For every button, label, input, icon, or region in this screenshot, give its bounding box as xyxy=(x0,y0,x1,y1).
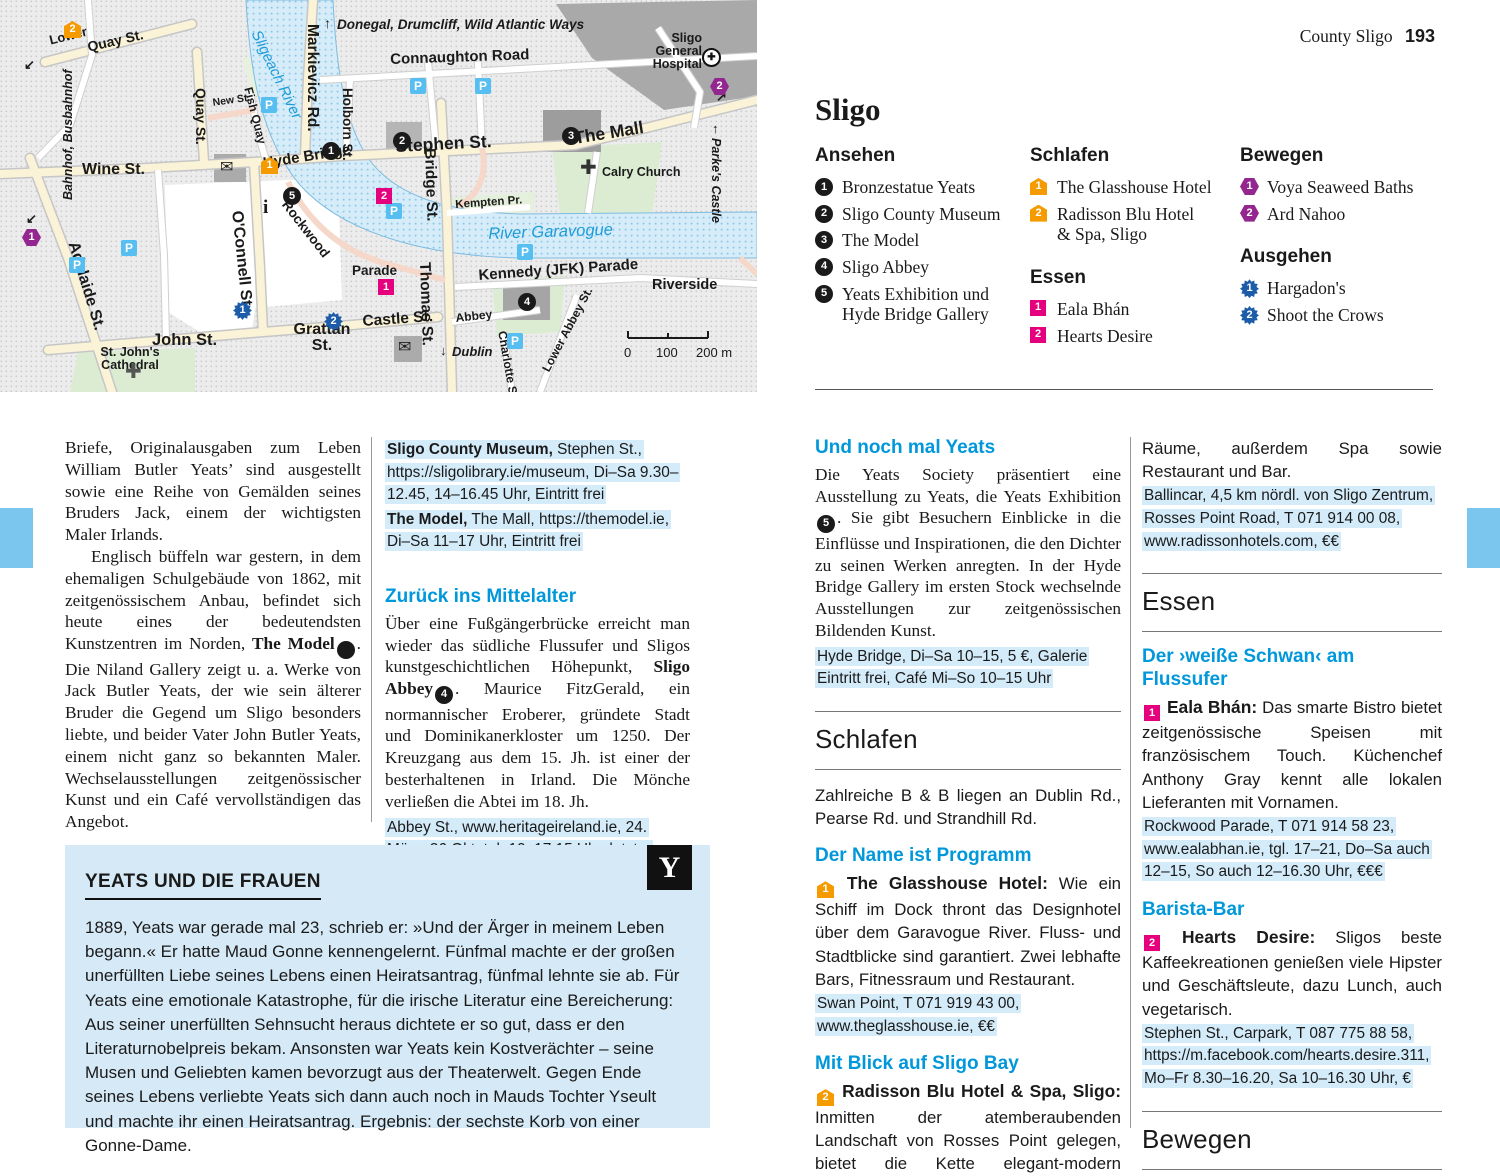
poi-label: Hargadon's xyxy=(1267,278,1346,298)
list-item: 1Eala Bhán xyxy=(1030,299,1230,320)
list-item: 1Hargadon's xyxy=(1240,278,1445,299)
restaurant-marker: 1 xyxy=(1144,705,1160,721)
practical-info: Stephen St., Carpark, T 087 775 88 58, h… xyxy=(1142,1023,1442,1091)
post-office-icon: ✉ xyxy=(398,340,411,356)
infobox-title: YEATS UND DIE FRAUEN xyxy=(85,871,321,900)
scale-label-0: 0 xyxy=(624,346,631,359)
poi-label: The Glasshouse Hotel xyxy=(1057,177,1212,197)
poi-label: Shoot the Crows xyxy=(1267,305,1384,325)
yeats-infobox: YEATS UND DIE FRAUEN Y 1889, Yeats war g… xyxy=(65,845,710,1128)
poi-overview: Ansehen 1Bronzestatue Yeats 2Sligo Count… xyxy=(815,145,1445,380)
running-head: County Sligo 193 xyxy=(1300,26,1435,47)
sight-marker: 3 xyxy=(337,641,355,659)
poi-label: The Model xyxy=(842,230,919,250)
poi-label: Sligo County Museum xyxy=(842,204,1001,224)
hotel-marker: 1 xyxy=(817,881,834,898)
poi-entry: 1 The Glasshouse Hotel: Wie ein Schiff i… xyxy=(815,872,1121,991)
poi-name-bold: Radisson Blu Hotel & Spa, Sligo: xyxy=(842,1081,1121,1101)
nightlife-marker: 1 xyxy=(1240,279,1259,298)
list-item: 1Voya Seaweed Baths xyxy=(1240,177,1445,198)
list-item: 2Shoot the Crows xyxy=(1240,305,1445,326)
map-label-donegal-ways: Donegal, Drumcliff, Wild Atlantic Ways xyxy=(337,18,584,32)
infobox-body: 1889, Yeats war gerade mal 23, schrieb e… xyxy=(85,916,682,1158)
map-marker-sight-2: 2 xyxy=(393,132,411,150)
poi-label: Bronzestatue Yeats xyxy=(842,177,975,197)
scale-label-200: 200 m xyxy=(696,346,732,359)
arrow-sw-icon: ↙ xyxy=(26,212,37,225)
body-text: . Die Niland Gallery zeigt u. a. Werke v… xyxy=(65,634,361,831)
map-label-bridge-st: Bridge St. xyxy=(421,148,439,222)
column-divider xyxy=(371,437,372,822)
scale-label-100: 100 xyxy=(656,346,678,359)
info-text: Ballincar, 4,5 km nördl. von Sligo Zentr… xyxy=(1142,486,1435,550)
calry-church-icon: ✚ xyxy=(580,158,597,178)
poi-name-bold: The Model xyxy=(252,634,335,653)
sight-marker: 4 xyxy=(815,258,833,276)
subheading: Der Name ist Programm xyxy=(815,845,1121,868)
practical-info: Ballincar, 4,5 km nördl. von Sligo Zentr… xyxy=(1142,485,1442,553)
group-bewegen-heading: Bewegen xyxy=(1240,145,1445,167)
chapter-tab-right xyxy=(1467,508,1500,568)
map-marker-sight-4: 4 xyxy=(518,293,536,311)
poi-name-bold: Sligo County Museum, xyxy=(387,441,553,458)
group-ansehen-heading: Ansehen xyxy=(815,145,1015,167)
practical-info: Hyde Bridge, Di–Sa 10–15, 5 €, Galerie E… xyxy=(815,646,1121,691)
body-paragraph: Briefe, Originalausgaben zum Leben Willi… xyxy=(65,437,361,546)
map-label-grattan-st: Grattan St. xyxy=(286,322,358,355)
sight-marker: 5 xyxy=(815,285,833,303)
parking-icon: P xyxy=(507,333,523,349)
sight-marker: 2 xyxy=(815,205,833,223)
list-item: 2Ard Nahoo xyxy=(1240,204,1445,225)
poi-label: Ard Nahoo xyxy=(1267,204,1345,224)
practical-info: The Model, The Mall, https://themodel.ie… xyxy=(385,509,690,554)
group-schlafen-heading: Schlafen xyxy=(1030,145,1230,167)
restaurant-marker: 2 xyxy=(1144,935,1160,951)
nightlife-marker: 2 xyxy=(1240,306,1259,325)
hospital-icon: ✚ xyxy=(702,48,721,67)
parking-icon: P xyxy=(121,240,137,256)
running-head-section: County Sligo xyxy=(1300,26,1393,46)
map-label-bahnhof-busbahnhof: Bahnhof, Busbahnhof xyxy=(62,69,75,200)
body-text: . Maurice FitzGerald, ein normannischer … xyxy=(385,679,690,811)
guidebook-spread: Lower Quay St. Quay St. New St. Fish Qua… xyxy=(0,0,1500,1176)
map-label-parade: Parade xyxy=(352,264,397,278)
restaurant-marker: 1 xyxy=(1030,300,1046,316)
poi-label: Hearts Desire xyxy=(1057,326,1153,346)
sligo-city-map: Lower Quay St. Quay St. New St. Fish Qua… xyxy=(0,0,757,392)
list-item: 1The Glasshouse Hotel xyxy=(1030,177,1230,198)
group-essen-heading: Essen xyxy=(1030,267,1230,289)
sight-marker: 3 xyxy=(815,231,833,249)
map-marker-food-2: 2 xyxy=(376,188,392,204)
page-number: 193 xyxy=(1405,26,1435,46)
practical-info: Rockwood Parade, T 071 914 58 23, www.ea… xyxy=(1142,816,1442,884)
list-item: 3The Model xyxy=(815,230,1015,251)
body-paragraph: Zahlreiche B & B liegen an Dublin Rd., P… xyxy=(815,784,1121,830)
subheading: Zurück ins Mittelalter xyxy=(385,586,690,609)
poi-entry: 2 Hearts Desire: Sligos beste Kaffeekrea… xyxy=(1142,926,1442,1021)
info-text: Stephen St., Carpark, T 087 775 88 58, h… xyxy=(1142,1024,1431,1088)
list-item: 2Hearts Desire xyxy=(1030,326,1230,347)
poi-entry: 1 Eala Bhán: Das smarte Bistro bietet ze… xyxy=(1142,696,1442,814)
body-paragraph: Die Yeats Society präsentiert eine Ausst… xyxy=(815,464,1121,642)
list-item: 1Bronzestatue Yeats xyxy=(815,177,1015,198)
sight-marker: 4 xyxy=(435,686,453,704)
hotel-marker: 2 xyxy=(817,1089,834,1106)
info-text: Hyde Bridge, Di–Sa 10–15, 5 €, Galerie E… xyxy=(815,647,1089,689)
body-paragraph: Englisch büffeln war gestern, in dem ehe… xyxy=(65,546,361,833)
cathedral-icon: ✚ xyxy=(125,362,142,382)
parking-icon: P xyxy=(517,244,533,260)
map-marker-sight-5: 5 xyxy=(283,187,301,205)
poi-entry: 2 Radisson Blu Hotel & Spa, Sligo: Inmit… xyxy=(815,1080,1121,1176)
post-office-icon: ✉ xyxy=(220,160,233,176)
body-text: Inmitten der atemberaubenden Landschaft … xyxy=(815,1108,1121,1176)
hotel-marker: 1 xyxy=(1030,178,1047,195)
arrow-sw-icon: ↙ xyxy=(24,58,35,71)
subheading: Und noch mal Yeats xyxy=(815,437,1121,460)
poi-label: Sligo Abbey xyxy=(842,257,929,277)
sight-marker: 5 xyxy=(817,515,835,533)
ansehen-list: 1Bronzestatue Yeats 2Sligo County Museum… xyxy=(815,177,1015,325)
practical-info: Sligo County Museum, Stephen St., https:… xyxy=(385,439,690,507)
poi-name-bold: Hearts Desire: xyxy=(1182,927,1315,947)
subheading: Mit Blick auf Sligo Bay xyxy=(815,1053,1121,1076)
overview-col-bewegen-ausgehen: Bewegen 1Voya Seaweed Baths 2Ard Nahoo A… xyxy=(1240,145,1445,332)
map-label-riverside: Riverside xyxy=(652,278,717,293)
poi-name-bold: The Glasshouse Hotel: xyxy=(847,873,1048,893)
section-bewegen: Bewegen xyxy=(1142,1111,1442,1170)
restaurant-marker: 2 xyxy=(1030,327,1046,343)
bewegen-list: 1Voya Seaweed Baths 2Ard Nahoo xyxy=(1240,177,1445,224)
map-marker-sight-1: 1 xyxy=(322,142,340,160)
map-marker-sight-3: 3 xyxy=(562,127,580,145)
city-title: Sligo xyxy=(815,92,880,128)
body-text: Die Yeats Society präsentiert eine Ausst… xyxy=(815,465,1121,506)
hotel-marker: 2 xyxy=(1030,205,1047,222)
sight-marker: 1 xyxy=(815,178,833,196)
body-text: . Sie gibt Besuchern Einblicke in die Ei… xyxy=(815,508,1121,640)
map-label-dublin: Dublin xyxy=(452,345,492,358)
body-paragraph: Räume, außerdem Spa sowie Restaurant und… xyxy=(1142,437,1442,483)
list-item: 5Yeats Exhibition und Hyde Bridge Galler… xyxy=(815,284,1002,325)
list-item: 2Sligo County Museum xyxy=(815,204,1015,225)
info-text: Rockwood Parade, T 071 914 58 23, www.ea… xyxy=(1142,817,1432,881)
map-label-wine-st: Wine St. xyxy=(82,162,145,178)
poi-name-bold: The Model, xyxy=(387,511,467,528)
map-label-thomas-st: Thomas St. xyxy=(416,262,435,346)
right-column-2: Räume, außerdem Spa sowie Restaurant und… xyxy=(1142,437,1442,1176)
body-paragraph: Über eine Fußgängerbrücke erreicht man w… xyxy=(385,613,690,813)
poi-label: Yeats Exhibition und Hyde Bridge Gallery xyxy=(842,284,989,325)
yeats-logo-icon: Y xyxy=(647,845,692,890)
wellness-marker: 2 xyxy=(1240,205,1259,222)
arrow-up-icon: ↑ xyxy=(324,16,331,30)
right-column-1: Und noch mal Yeats Die Yeats Society prä… xyxy=(815,437,1121,1176)
wellness-marker: 1 xyxy=(1240,178,1259,195)
column-divider xyxy=(1130,437,1131,1128)
map-label-calry-church: Calry Church xyxy=(602,166,681,179)
map-label-markievicz-rd: Markievicz Rd. xyxy=(304,24,320,132)
arrow-up-icon: ↑ xyxy=(712,122,719,135)
poi-label: Voya Seaweed Baths xyxy=(1267,177,1413,197)
schlafen-list: 1The Glasshouse Hotel 2Radisson Blu Hote… xyxy=(1030,177,1230,245)
list-item: 4Sligo Abbey xyxy=(815,257,1015,278)
poi-label: Radisson Blu Hotel & Spa, Sligo xyxy=(1057,204,1194,245)
overview-col-schlafen-essen: Schlafen 1The Glasshouse Hotel 2Radisson… xyxy=(1030,145,1230,352)
chapter-tab-left xyxy=(0,508,33,568)
left-column-2: Sligo County Museum, Stephen St., https:… xyxy=(385,437,690,884)
map-label-quay-st: Quay St. xyxy=(194,88,208,145)
subheading: Der ›weiße Schwan‹ am Flussufer xyxy=(1142,646,1442,692)
parking-icon: P xyxy=(261,97,277,113)
parking-icon: P xyxy=(410,78,426,94)
subheading: Barista-Bar xyxy=(1142,899,1442,922)
left-column-1: Briefe, Originalausgaben zum Leben Willi… xyxy=(65,437,361,833)
info-text: Swan Point, T 071 919 43 00, www.theglas… xyxy=(815,994,1021,1036)
poi-name-bold: Eala Bhán: xyxy=(1167,697,1257,717)
group-ausgehen-heading: Ausgehen xyxy=(1240,246,1445,268)
poi-label: Eala Bhán xyxy=(1057,299,1129,319)
ausgehen-list: 1Hargadon's 2Shoot the Crows xyxy=(1240,278,1445,325)
practical-info: Swan Point, T 071 919 43 00, www.theglas… xyxy=(815,993,1121,1038)
parking-icon: P xyxy=(475,78,491,94)
body-text: Über eine Fußgängerbrücke erreicht man w… xyxy=(385,614,690,677)
essen-list: 1Eala Bhán 2Hearts Desire xyxy=(1030,299,1230,346)
section-essen: Essen xyxy=(1142,573,1442,632)
parking-icon: P xyxy=(69,257,85,273)
overview-col-ansehen: Ansehen 1Bronzestatue Yeats 2Sligo Count… xyxy=(815,145,1015,331)
list-item: 2Radisson Blu Hotel & Spa, Sligo xyxy=(1030,204,1207,245)
map-label-parkes-castle: Parke's Castle xyxy=(709,138,722,223)
section-schlafen: Schlafen xyxy=(815,711,1121,770)
map-label-john-st: John St. xyxy=(152,332,217,349)
arrow-down-icon: ↓ xyxy=(440,344,447,357)
overview-rule xyxy=(815,389,1433,390)
tourist-info-icon: i xyxy=(263,198,268,217)
parking-icon: P xyxy=(386,203,402,219)
map-label-sligo-general-hospital: Sligo General Hospital xyxy=(638,32,702,70)
map-marker-food-1: 1 xyxy=(378,279,394,295)
